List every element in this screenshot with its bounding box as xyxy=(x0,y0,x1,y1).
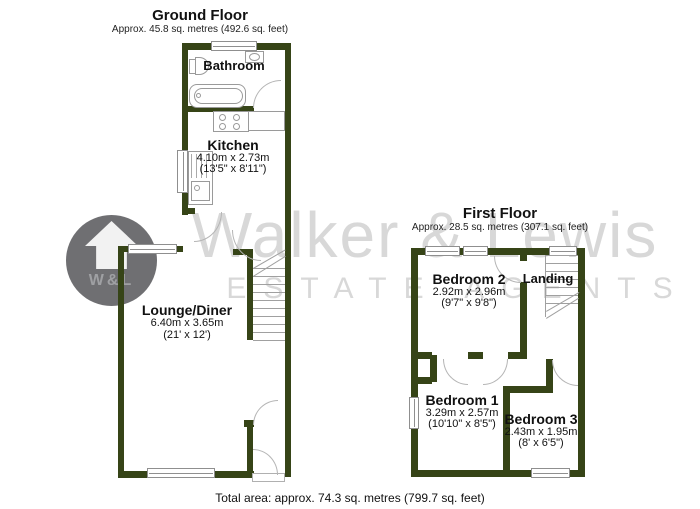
floorplans: Ground Floor Approx. 45.8 sq. metres (49… xyxy=(0,0,700,509)
stair-edge xyxy=(545,255,546,317)
staircase xyxy=(253,268,285,343)
window xyxy=(147,468,215,478)
window xyxy=(128,244,177,254)
front-door-swing-arc xyxy=(253,449,278,475)
bedroom3-dim-imperial: (8' x 6'5") xyxy=(518,437,563,449)
window xyxy=(177,150,188,193)
wall-segment xyxy=(418,377,432,384)
kitchen-dim-imperial: (13'5" x 8'11") xyxy=(200,163,267,175)
kitchen-sink xyxy=(191,181,210,201)
wall-segment xyxy=(468,352,483,359)
hob-burner xyxy=(233,123,240,130)
door-swing-arc xyxy=(194,212,222,242)
door-swing-arc xyxy=(483,359,508,385)
sink-bowl xyxy=(194,185,200,191)
bedroom1-label: Bedroom 1 xyxy=(425,392,498,408)
wall-segment xyxy=(503,386,553,393)
bath-tap xyxy=(196,93,201,98)
window xyxy=(409,397,419,429)
door-swing-arc xyxy=(253,400,278,425)
ground-floor-area: Approx. 45.8 sq. metres (492.6 sq. feet) xyxy=(112,24,288,35)
lounge-dim-imperial: (21' x 12') xyxy=(163,329,211,341)
hob-burner xyxy=(219,123,226,130)
window xyxy=(425,246,460,256)
first-floor-area: Approx. 28.5 sq. metres (307.1 sq. feet) xyxy=(412,222,588,233)
door-swing-arc xyxy=(253,80,281,108)
wall-segment xyxy=(520,255,527,261)
wall-segment xyxy=(411,248,418,477)
bedroom2-label: Bedroom 2 xyxy=(432,271,505,287)
total-area-text: Total area: approx. 74.3 sq. metres (799… xyxy=(215,491,484,505)
bedroom2-dim-imperial: (9'7" x 9'8") xyxy=(441,297,496,309)
kitchen-label: Kitchen xyxy=(207,137,258,153)
ground-floor-title: Ground Floor xyxy=(152,7,248,24)
window xyxy=(531,468,570,478)
lounge-dim-metric: 6.40m x 3.65m xyxy=(151,317,224,329)
lounge-diner-label: Lounge/Diner xyxy=(142,302,232,318)
window xyxy=(463,246,488,256)
floorplan-canvas: Walker & Lewis ESTATE AGENTS W&L Ground … xyxy=(0,0,700,509)
wall-segment xyxy=(285,43,291,477)
wall-segment xyxy=(578,248,585,477)
door-swing-arc xyxy=(552,360,578,386)
hob-burner xyxy=(233,114,240,121)
wall-segment xyxy=(118,246,124,478)
first-floor-title: First Floor xyxy=(463,205,537,222)
door-swing-arc xyxy=(232,230,261,261)
window xyxy=(211,41,257,51)
bathroom-label: Bathroom xyxy=(203,58,264,73)
hob xyxy=(213,111,249,132)
door-swing-arc xyxy=(443,359,468,385)
wall-segment xyxy=(520,282,527,359)
kitchen-counter xyxy=(248,111,285,131)
bathtub-inner xyxy=(194,88,243,104)
wall-segment xyxy=(508,352,527,359)
bedroom1-dim-imperial: (10'10" x 8'5") xyxy=(428,418,496,430)
hob-burner xyxy=(219,114,226,121)
landing-label: Landing xyxy=(523,271,574,286)
bedroom3-label: Bedroom 3 xyxy=(504,411,577,427)
